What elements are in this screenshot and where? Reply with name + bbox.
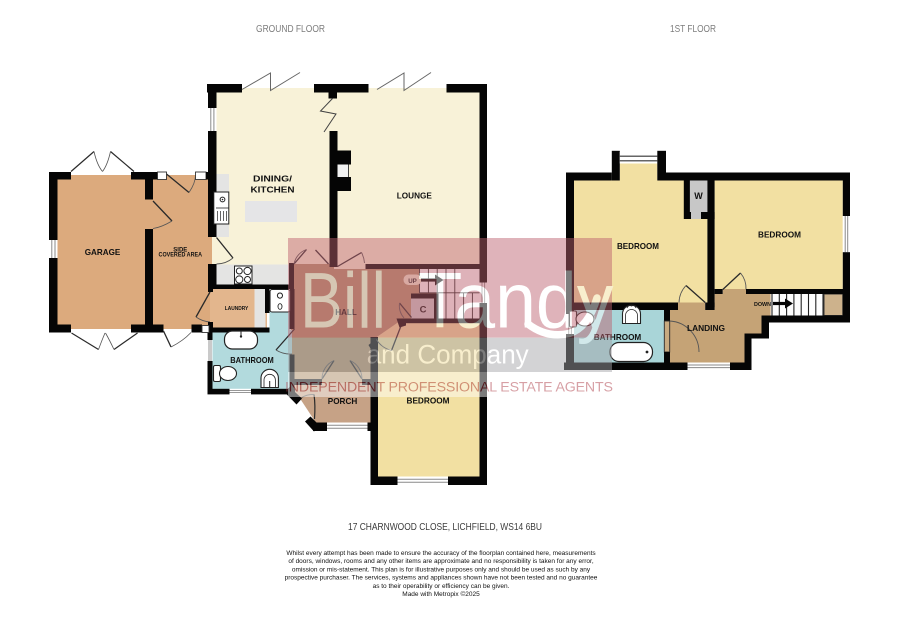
svg-text:LAUNDRY: LAUNDRY [225, 306, 249, 312]
svg-text:BEDROOM: BEDROOM [758, 231, 801, 240]
svg-text:DOWN: DOWN [754, 302, 771, 308]
svg-text:Whilst every attempt has been: Whilst every attempt has been made to en… [286, 550, 596, 557]
svg-text:BEDROOM: BEDROOM [617, 242, 659, 251]
svg-text:of doors, windows, rooms and a: of doors, windows, rooms and any other i… [288, 558, 593, 565]
svg-text:W: W [694, 191, 703, 201]
svg-text:LANDING: LANDING [687, 324, 725, 333]
svg-text:LOUNGE: LOUNGE [397, 192, 433, 201]
svg-text:Made with Metropix ©2025: Made with Metropix ©2025 [402, 590, 480, 598]
svg-text:17 CHARNWOOD CLOSE, LICHFIELD,: 17 CHARNWOOD CLOSE, LICHFIELD, WS14 6BU [348, 521, 542, 533]
svg-text:as to their operability or eff: as to their operability or efficiency ca… [373, 583, 510, 590]
svg-text:GROUND FLOOR: GROUND FLOOR [256, 23, 325, 35]
svg-text:1ST FLOOR: 1ST FLOOR [670, 23, 716, 35]
svg-text:GARAGE: GARAGE [85, 248, 121, 257]
svg-text:omission or mis-statement. Thi: omission or mis-statement. This plan is … [292, 566, 591, 573]
svg-text:BATHROOM: BATHROOM [230, 356, 274, 365]
svg-text:BEDROOM: BEDROOM [407, 397, 450, 406]
svg-text:PORCH: PORCH [328, 397, 358, 406]
svg-text:KITCHEN: KITCHEN [251, 185, 295, 194]
svg-text:and Company: and Company [367, 339, 529, 369]
svg-text:Bill: Bill [300, 256, 386, 345]
svg-text:Tandy: Tandy [418, 256, 614, 345]
svg-text:prospective purchaser. The ser: prospective purchaser. The services, sys… [285, 575, 598, 582]
svg-text:DINING/: DINING/ [253, 175, 293, 184]
svg-text:COVERED AREA: COVERED AREA [159, 253, 203, 259]
svg-text:INDEPENDENT PROFESSIONAL ESTAT: INDEPENDENT PROFESSIONAL ESTATE AGENTS [285, 380, 613, 396]
